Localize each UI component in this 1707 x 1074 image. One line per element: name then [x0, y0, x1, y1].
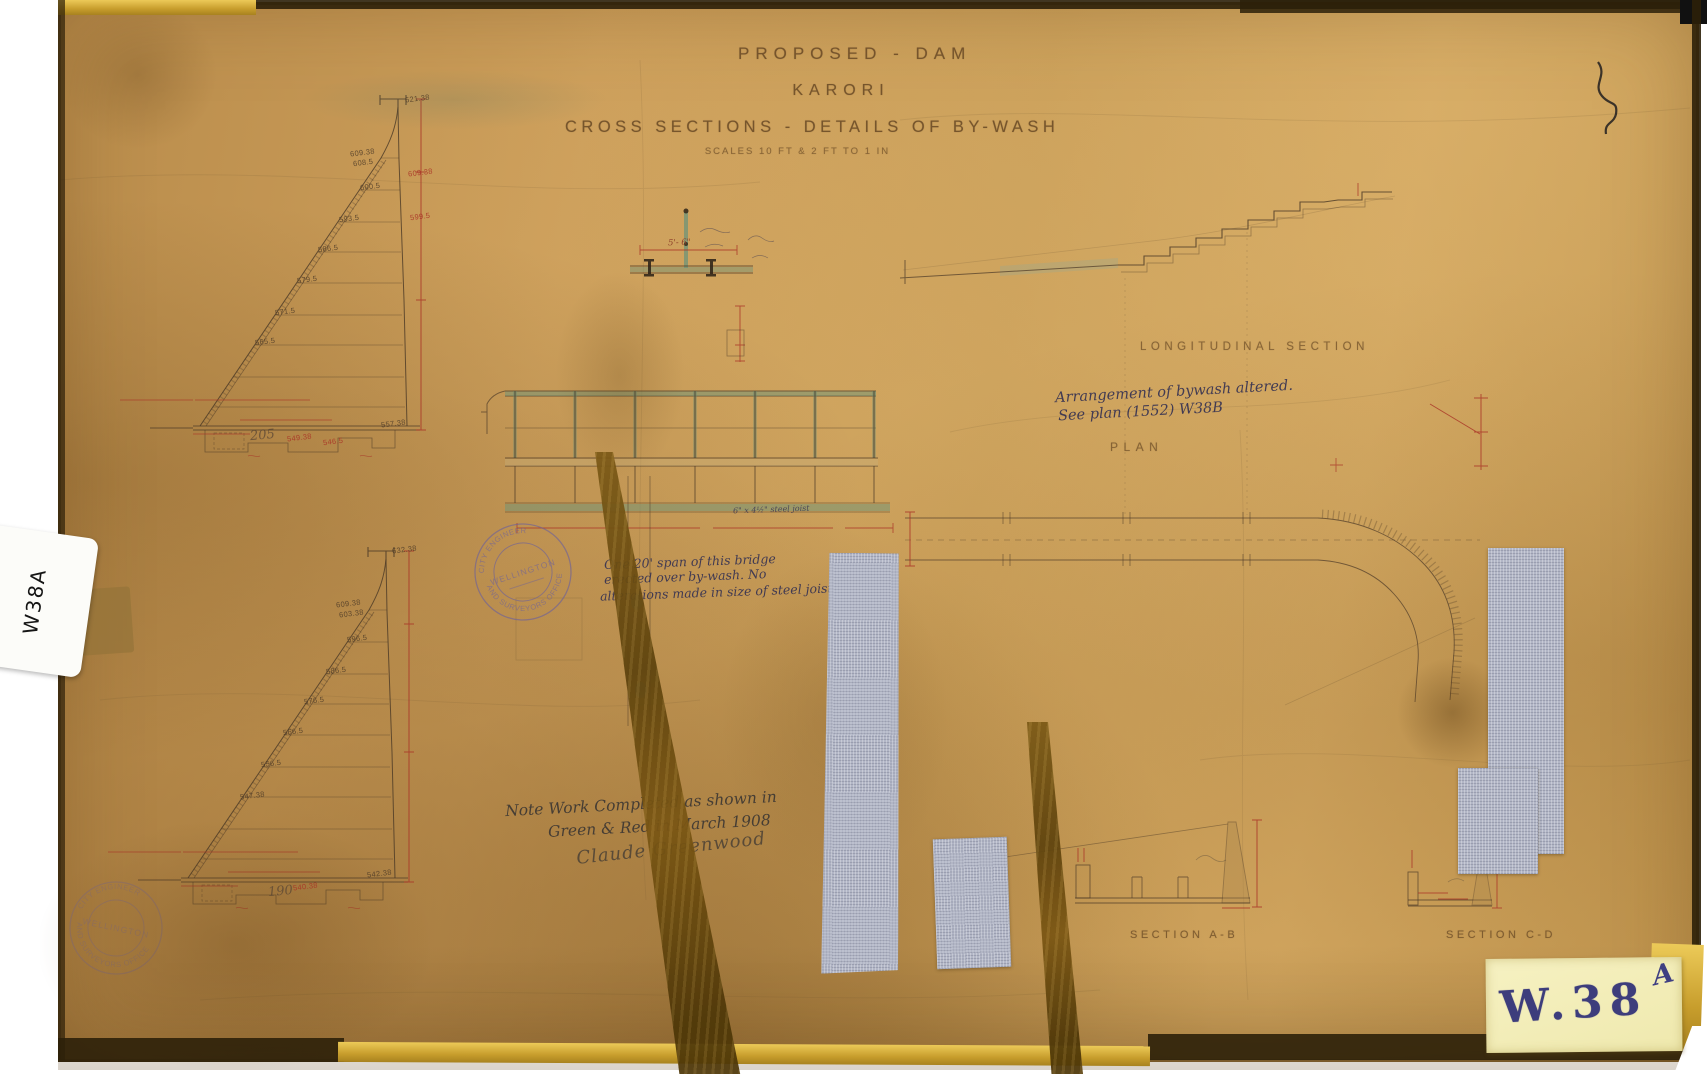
fabric-patch-lower — [933, 837, 1011, 970]
archive-label-corner: W.38 A — [1486, 957, 1683, 1053]
title-line-3: CROSS SECTIONS - DETAILS OF BY-WASH — [565, 118, 1050, 137]
ink-scrawl — [1598, 62, 1616, 134]
station-label-upper: 205 — [249, 427, 275, 444]
edge-binding-bottom-left — [58, 1038, 344, 1062]
title-line-2: KARORI — [766, 82, 916, 100]
office-stamp: CITY ENGINEER AND SURVEYORS OFFICE WELLI… — [463, 512, 584, 633]
lower-dam-cross-section — [108, 547, 414, 909]
edge-binding-top-right — [1240, 0, 1692, 13]
archive-label-side-text: W38A — [17, 566, 50, 636]
office-stamp-faint: CITY ENGINEER AND SURVEYORS OFFICE WELLI… — [61, 873, 170, 982]
edge-binding-right — [1692, 0, 1701, 1045]
bywash-plan-drawing — [905, 394, 1488, 705]
label-section-cd: SECTION C-D — [1446, 929, 1556, 941]
upper-dam-cross-section — [120, 95, 426, 457]
edge-binding-gold-top — [58, 0, 256, 15]
svg-text:WELLINGTON: WELLINGTON — [82, 916, 151, 940]
title-line-1: PROPOSED - DAM — [738, 44, 948, 64]
scanned-drawing-page: CITY ENGINEER AND SURVEYORS OFFICE WELLI… — [0, 0, 1707, 1074]
scale-note: SCALES 10 FT & 2 FT TO 1 IN — [690, 146, 905, 157]
label-plan: PLAN — [1110, 440, 1163, 454]
svg-text:CITY ENGINEER: CITY ENGINEER — [75, 874, 143, 922]
label-longitudinal-section: LONGITUDINAL SECTION — [1140, 341, 1369, 353]
edge-binding-left — [58, 0, 65, 1060]
label-section-ab: SECTION A-B — [1130, 929, 1238, 941]
archive-letter: A — [1650, 957, 1677, 992]
archive-code: W.38 — [1499, 974, 1649, 1034]
fabric-patch-center — [821, 553, 902, 975]
bridge-cross-detail — [630, 209, 774, 363]
fabric-patch-right-lower — [1458, 768, 1538, 874]
stamp-center-text: WELLINGTON — [489, 557, 557, 588]
station-label-lower: 190 — [267, 883, 293, 900]
dim-bridge-span: 5'- 6" — [668, 238, 691, 249]
edge-binding-gold-bottom — [338, 1042, 1150, 1066]
